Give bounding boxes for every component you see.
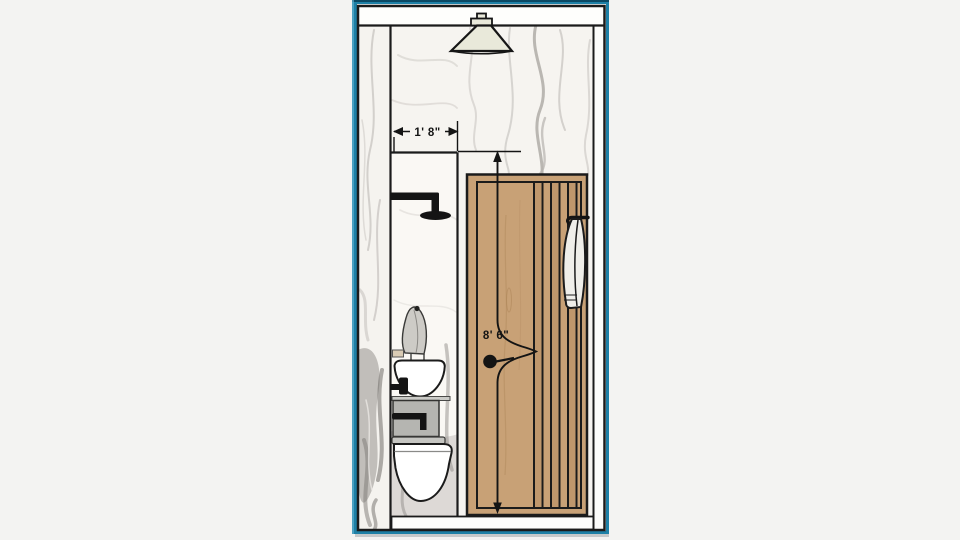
elevation-drawing: 1' 8" 8' 6" <box>358 6 605 531</box>
elevation-canvas[interactable]: 1' 8" 8' 6" <box>0 0 960 540</box>
baseboard <box>392 517 594 530</box>
hanging-towel <box>563 219 585 308</box>
vanity-cabinet <box>392 401 445 445</box>
width-dimension-label: 1' 8" <box>414 127 440 139</box>
design-viewer: 1' 8" 8' 6" <box>0 0 960 540</box>
height-dimension-label: 8' 6" <box>483 330 509 342</box>
soap-dish <box>393 350 404 357</box>
left-wall-section <box>358 25 390 531</box>
right-wall-band <box>594 25 604 530</box>
